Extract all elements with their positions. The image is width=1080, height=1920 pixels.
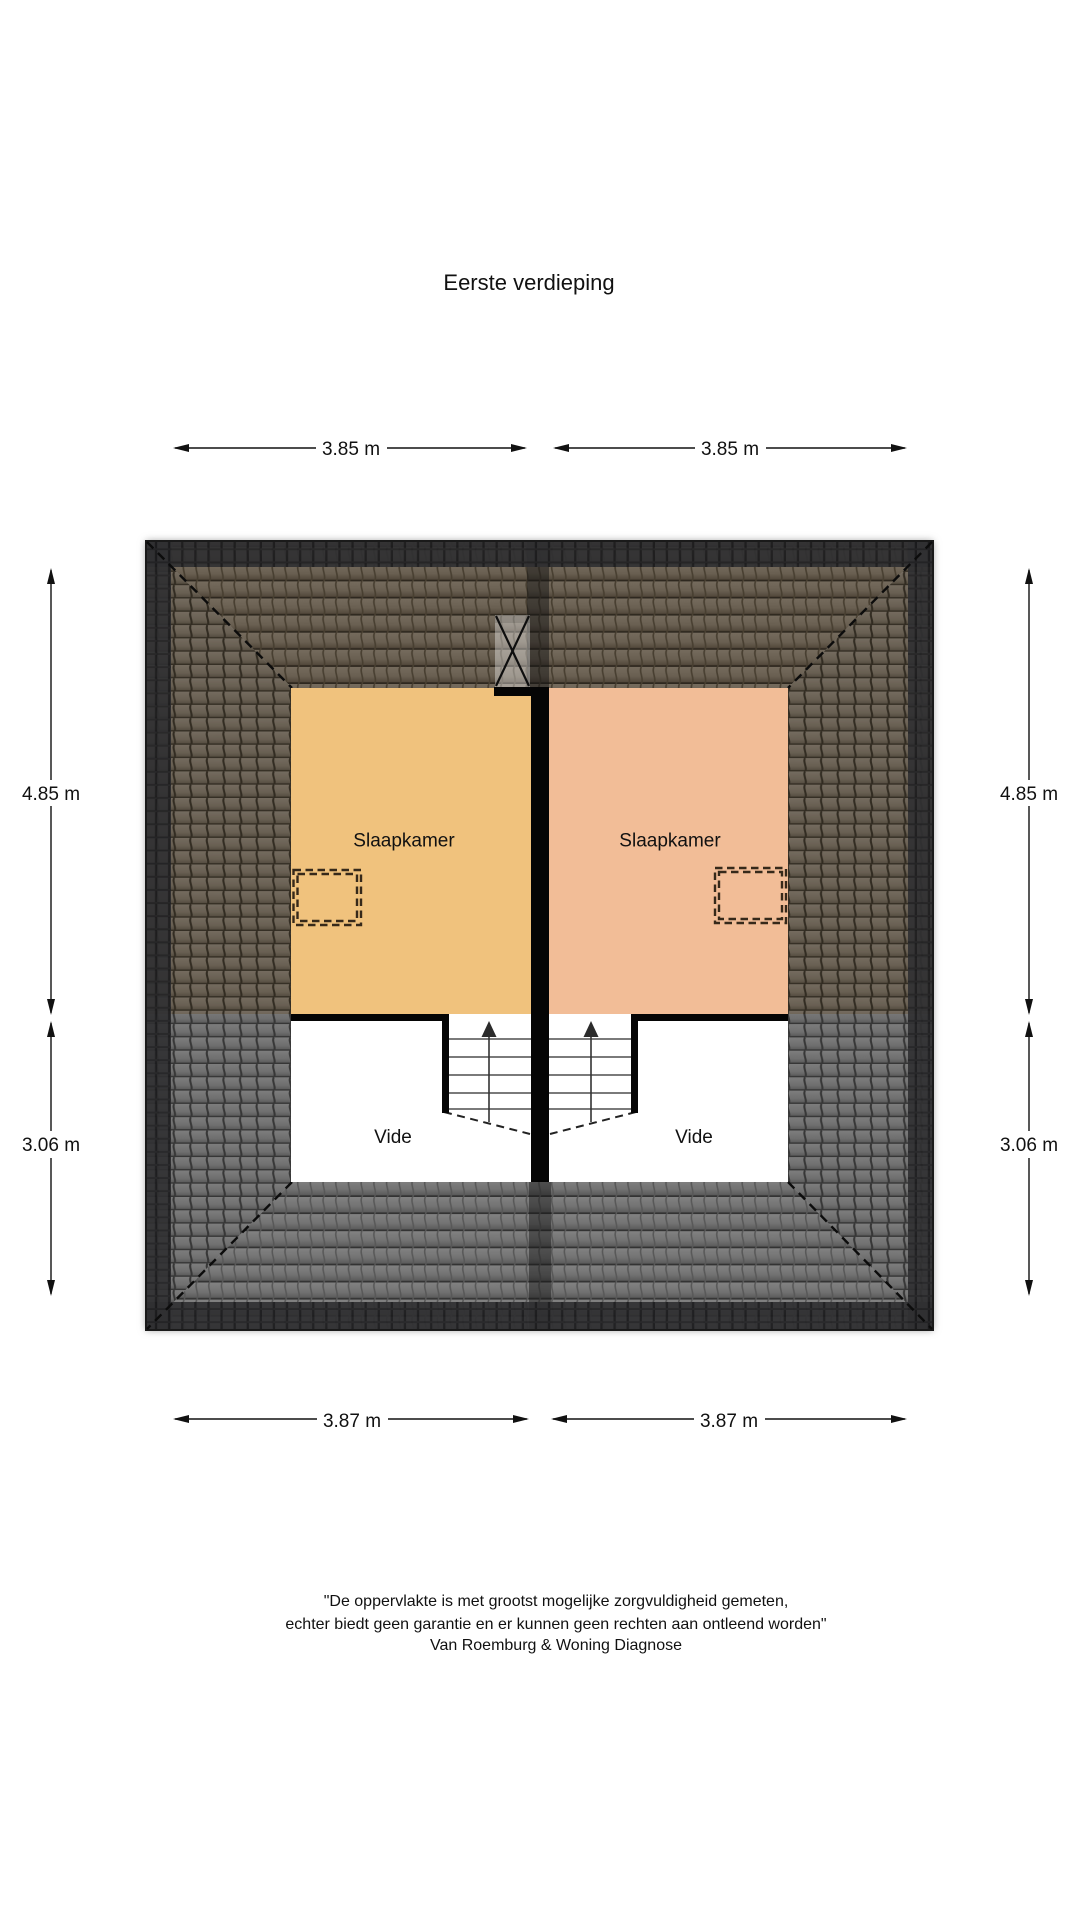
svg-text:Vide: Vide bbox=[374, 1127, 412, 1148]
svg-text:3.06 m: 3.06 m bbox=[22, 1135, 80, 1156]
svg-text:Van Roemburg & Woning Diagnose: Van Roemburg & Woning Diagnose bbox=[430, 1637, 682, 1654]
svg-text:"De oppervlakte is met grootst: "De oppervlakte is met grootst mogelijke… bbox=[324, 1593, 789, 1610]
svg-text:Slaapkamer: Slaapkamer bbox=[353, 831, 455, 852]
svg-text:Vide: Vide bbox=[675, 1127, 713, 1148]
svg-text:echter biedt geen garantie en: echter biedt geen garantie en er kunnen … bbox=[285, 1616, 826, 1633]
svg-text:3.06 m: 3.06 m bbox=[1000, 1135, 1058, 1156]
svg-text:3.87 m: 3.87 m bbox=[323, 1411, 381, 1432]
svg-text:4.85 m: 4.85 m bbox=[1000, 784, 1058, 805]
svg-text:3.87 m: 3.87 m bbox=[700, 1411, 758, 1432]
svg-text:Slaapkamer: Slaapkamer bbox=[619, 831, 721, 852]
svg-text:Eerste verdieping: Eerste verdieping bbox=[443, 270, 614, 295]
svg-text:4.85 m: 4.85 m bbox=[22, 784, 80, 805]
svg-text:3.85 m: 3.85 m bbox=[701, 439, 759, 460]
svg-text:3.85 m: 3.85 m bbox=[322, 439, 380, 460]
